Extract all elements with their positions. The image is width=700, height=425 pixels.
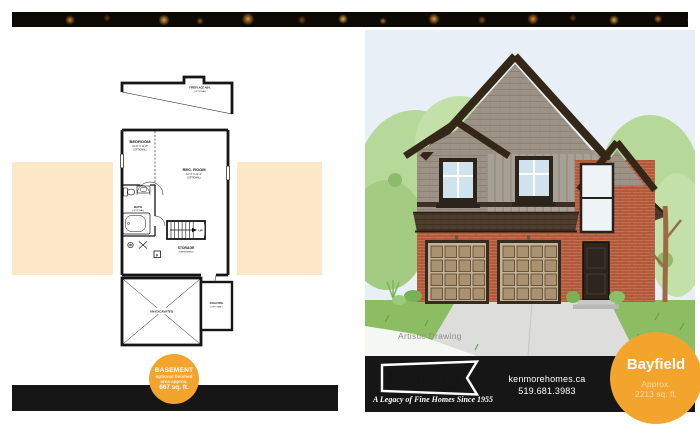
stairs: UP [167, 221, 205, 239]
bedroom-dims-text: 10'-6" X 11'-8" [132, 145, 148, 148]
fireplace-text: FIREPLACE ABV. [189, 86, 211, 90]
storage-text: STORAGE [178, 246, 195, 250]
cold-room-text: COLD RM. [210, 301, 224, 305]
basement-badge-area: 667 sq. ft. [159, 384, 188, 391]
model-name: Bayfield [627, 356, 685, 375]
brand-sub-text: HOMES [439, 387, 462, 393]
house-rendering [365, 30, 695, 356]
phone-text: 519.681.3983 [495, 385, 599, 397]
contact-block: kenmorehomes.ca 519.681.3983 [495, 373, 599, 397]
rec-room-text: REC. ROOM [182, 167, 206, 172]
storage-label: STORAGE (UNFINISHED) [178, 246, 195, 254]
bath-text: BATH [134, 205, 142, 209]
rec-room-sub-text: (OPTIONAL) [187, 176, 200, 179]
bokeh-banner [12, 12, 688, 27]
bath-sub-text: (OPTIONAL) [132, 209, 144, 212]
model-badge: Bayfield Approx. 2213 sq. ft. [610, 332, 700, 424]
basement-floor-plan: FIREPLACE ABV. (OPTIONAL) BEDROOM 10'-6"… [113, 64, 237, 354]
unexcavated-text: UN-EXCAVATED [150, 310, 174, 314]
bedroom-sub-text: (OPTIONAL) [133, 148, 146, 151]
basement-badge-title: BASEMENT [155, 367, 194, 374]
furnace-text: F [156, 253, 158, 257]
upstairs-window-right [512, 156, 556, 206]
bedroom-text: BEDROOM [130, 139, 152, 144]
fireplace-sub-text: (OPTIONAL) [194, 90, 206, 93]
upstairs-window-left [436, 158, 480, 208]
cold-room: COLD RM. (OPTIONAL) [201, 282, 232, 330]
model-area: 2213 sq. ft. [635, 389, 677, 400]
website-text: kenmorehomes.ca [495, 373, 599, 385]
basement-badge: BASEMENT optional finished area approx. … [149, 354, 199, 404]
cold-room-sub-text: (OPTIONAL) [211, 305, 223, 308]
flyer-page: FIREPLACE ABV. (OPTIONAL) BEDROOM 10'-6"… [0, 0, 700, 425]
garage-door-left [425, 240, 489, 304]
model-approx: Approx. [641, 379, 670, 390]
artistic-drawing-caption: Artistic Drawing [398, 331, 462, 341]
garage-door-right [497, 240, 561, 304]
kenmore-logo-ribbon: Kenmore HOMES [377, 359, 489, 397]
brand-tagline: A Legacy of Fine Homes Since 1955 [371, 395, 495, 404]
rec-room-dims-text: 14'-4" X 22'-2" [186, 173, 202, 176]
storage-sub-text: (UNFINISHED) [179, 252, 194, 254]
up-text: UP [198, 229, 202, 233]
